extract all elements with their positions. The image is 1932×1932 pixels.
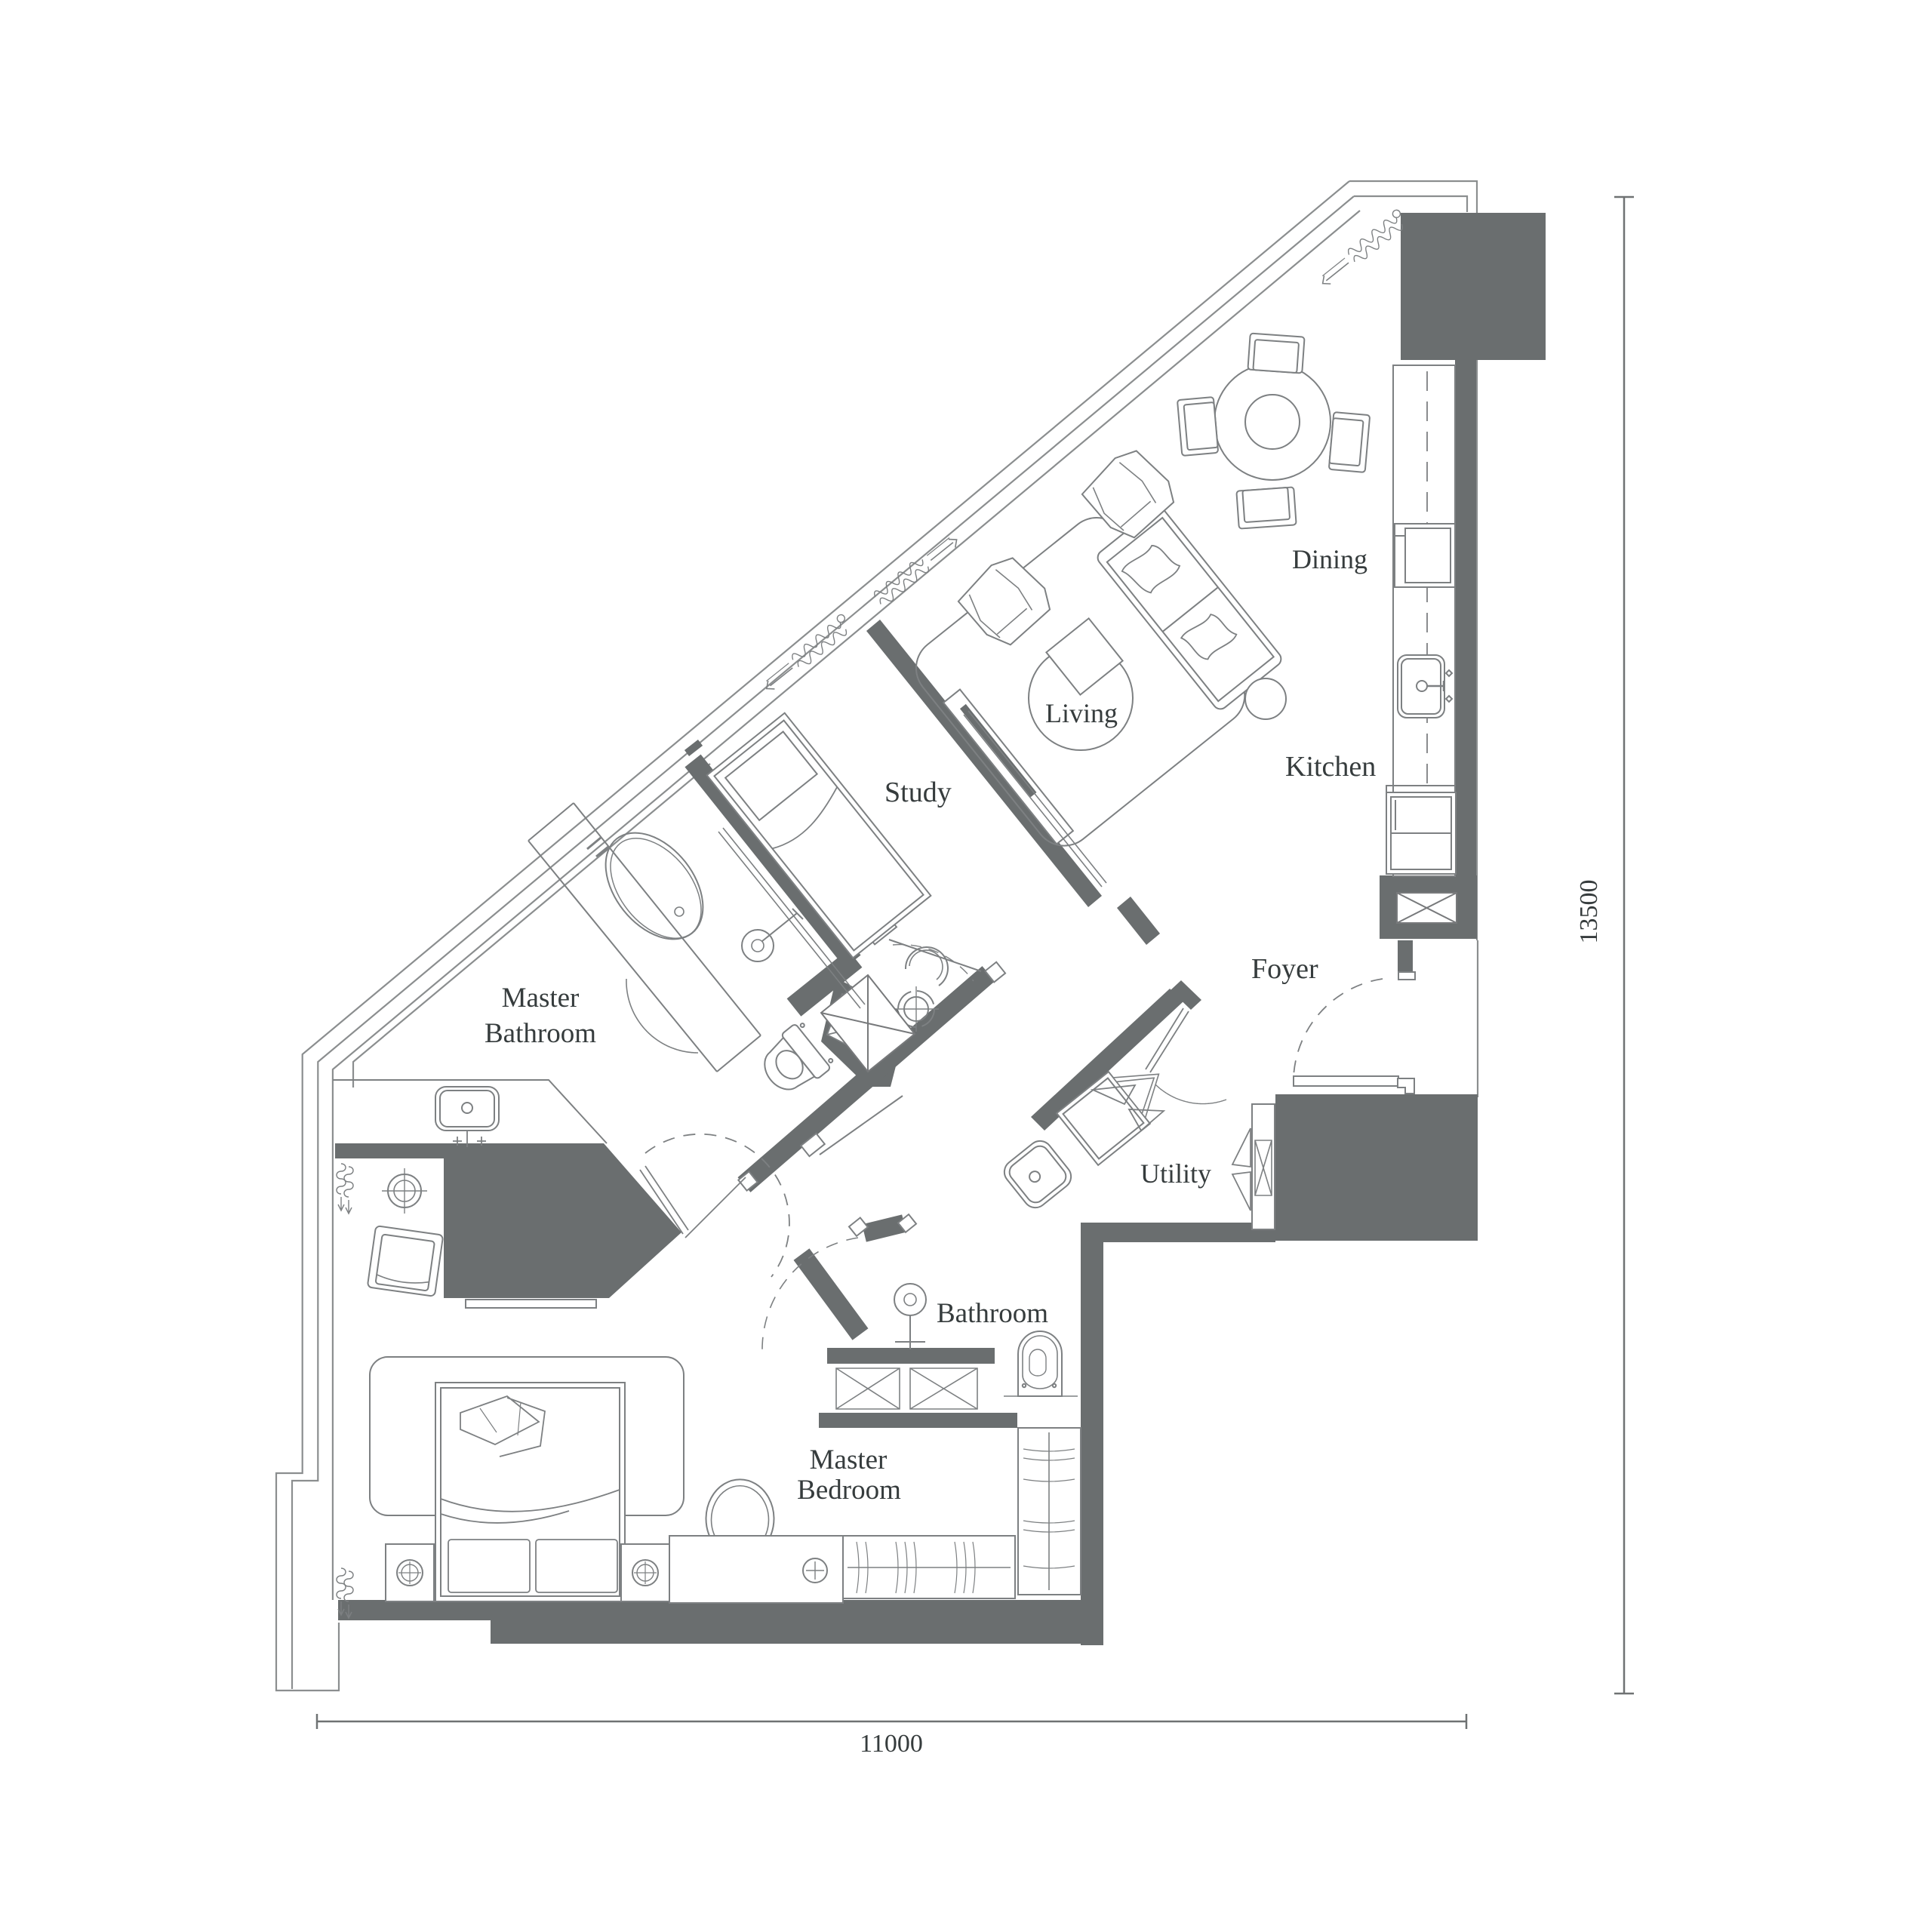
svg-text:Bathroom: Bathroom [485, 1018, 596, 1049]
svg-text:Utility: Utility [1140, 1158, 1211, 1189]
svg-text:Bedroom: Bedroom [797, 1475, 901, 1506]
svg-text:Kitchen: Kitchen [1285, 751, 1376, 783]
svg-text:Master: Master [502, 983, 580, 1014]
svg-text:Dining: Dining [1292, 544, 1367, 574]
svg-text:Study: Study [884, 777, 952, 808]
svg-text:Bathroom: Bathroom [937, 1298, 1048, 1329]
svg-text:11000: 11000 [860, 1730, 923, 1758]
svg-text:Foyer: Foyer [1251, 953, 1318, 985]
svg-text:13500: 13500 [1575, 880, 1603, 944]
svg-text:Living: Living [1045, 698, 1118, 728]
svg-text:Master: Master [810, 1444, 888, 1475]
